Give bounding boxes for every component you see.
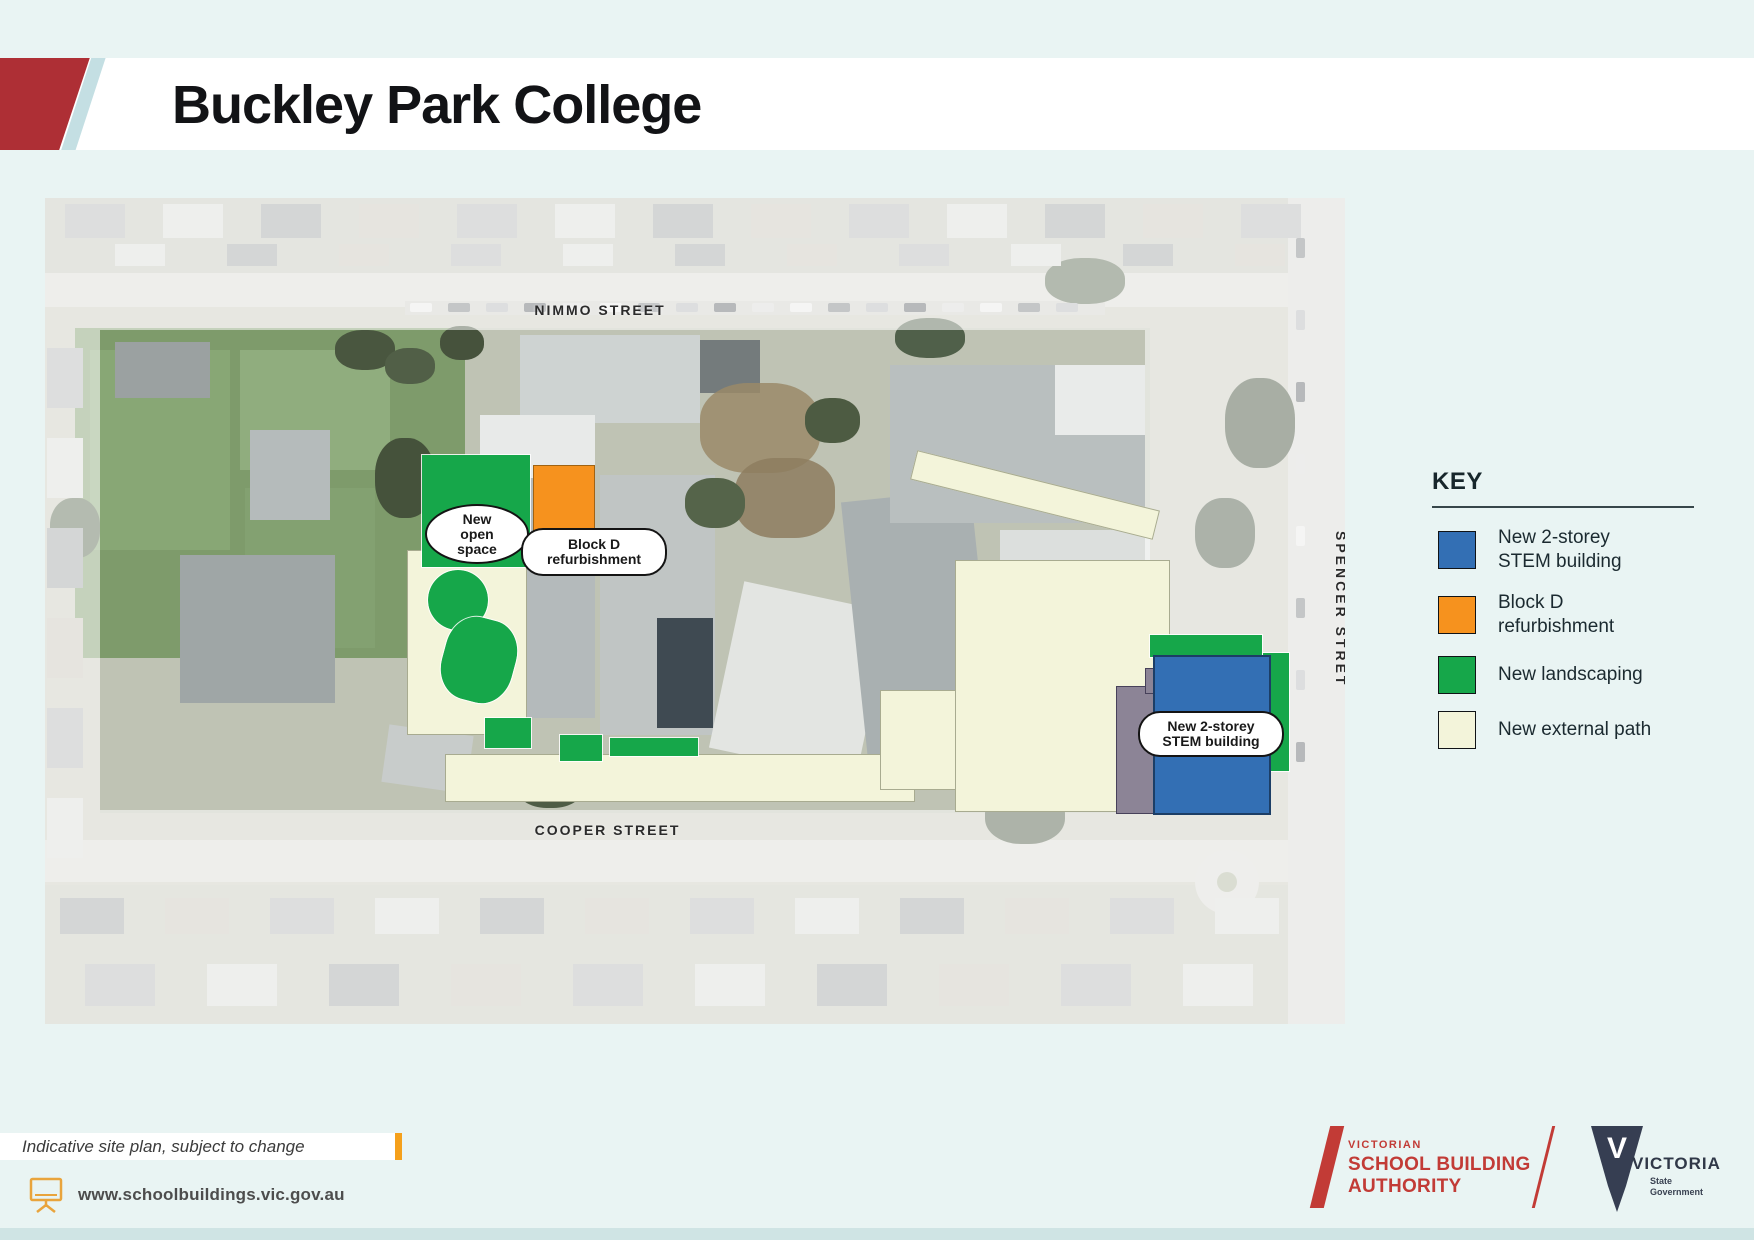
legend-swatch-stem <box>1438 531 1476 569</box>
fade-bottom <box>45 810 1345 1024</box>
callout-line: Block D <box>568 537 620 552</box>
new-landscaping-area <box>1150 635 1262 657</box>
monitor-icon <box>28 1176 64 1214</box>
site-plan-map: NIMMO STREET COOPER STREET SPENCER STRET… <box>45 198 1345 1024</box>
fade-left <box>45 330 100 810</box>
svg-text:V: V <box>1607 1132 1627 1165</box>
callout-line: open <box>460 527 493 542</box>
aerial-feature <box>440 326 484 360</box>
street-label-cooper: COOPER STREET <box>490 822 725 838</box>
legend-swatch-block-d <box>1438 596 1476 634</box>
aerial-feature <box>657 618 713 728</box>
page: Buckley Park College NIMMO STREET COOPER… <box>0 0 1754 1240</box>
vsba-tagline: VICTORIAN <box>1348 1140 1531 1151</box>
street-label-spencer: SPENCER STRET <box>1325 524 1345 694</box>
legend-label: New 2-storey STEM building <box>1498 526 1622 574</box>
legend-label: New landscaping <box>1498 663 1643 687</box>
legend: New 2-storey STEM building Block D refur… <box>1438 526 1651 749</box>
aerial-feature <box>115 342 210 398</box>
new-landscaping-area <box>610 738 698 756</box>
vsba-line1: SCHOOL BUILDING <box>1348 1155 1531 1174</box>
callout-stem-building: New 2-storey STEM building <box>1138 711 1284 757</box>
legend-label: Block D refurbishment <box>1498 591 1614 639</box>
vsba-logo: VICTORIAN SCHOOL BUILDING AUTHORITY <box>1320 1126 1570 1208</box>
victoria-logo: V VICTORIA State Government <box>1588 1124 1738 1216</box>
callout-line: New 2-storey <box>1167 719 1254 734</box>
aerial-feature <box>805 398 860 443</box>
aerial-feature <box>520 335 700 423</box>
aerial-feature <box>180 555 335 703</box>
victoria-subtitle: State Government <box>1650 1176 1703 1198</box>
website-row: www.schoolbuildings.vic.gov.au <box>28 1176 345 1214</box>
victoria-name: VICTORIA <box>1632 1154 1721 1174</box>
legend-item-path: New external path <box>1438 711 1651 749</box>
new-landscaping-area <box>485 718 531 748</box>
callout-line: New <box>463 512 492 527</box>
vsba-slash-icon <box>1310 1126 1344 1208</box>
callout-line: space <box>457 542 497 557</box>
callout-line: refurbishment <box>547 552 641 567</box>
legend-item-stem: New 2-storey STEM building <box>1438 526 1651 574</box>
disclaimer-text: Indicative site plan, subject to change <box>22 1137 305 1157</box>
callout-line: STEM building <box>1162 734 1259 749</box>
vsba-line2: AUTHORITY <box>1348 1177 1531 1196</box>
legend-item-block-d: Block D refurbishment <box>1438 591 1651 639</box>
aerial-feature <box>385 348 435 384</box>
vsba-slash-icon <box>1532 1126 1555 1208</box>
page-title: Buckley Park College <box>172 58 701 150</box>
callout-block-d: Block D refurbishment <box>521 528 667 576</box>
aerial-feature <box>250 430 330 520</box>
new-external-path-area <box>445 754 915 802</box>
new-landscaping-area <box>560 735 602 761</box>
callout-new-open-space: New open space <box>425 504 529 564</box>
website-url[interactable]: www.schoolbuildings.vic.gov.au <box>78 1185 345 1205</box>
aerial-feature <box>685 478 745 528</box>
street-label-nimmo: NIMMO STREET <box>485 302 715 318</box>
legend-title: KEY <box>1432 468 1483 496</box>
disclaimer-strip: Indicative site plan, subject to change <box>0 1133 402 1160</box>
aerial-feature <box>1055 365 1145 435</box>
aerial-feature <box>735 458 835 538</box>
legend-label: New external path <box>1498 718 1651 742</box>
legend-item-landscaping: New landscaping <box>1438 656 1651 694</box>
legend-rule <box>1432 506 1694 508</box>
legend-swatch-landscaping <box>1438 656 1476 694</box>
legend-swatch-path <box>1438 711 1476 749</box>
bottom-band <box>0 1228 1754 1240</box>
disclaimer-accent-bar <box>395 1133 402 1160</box>
header: Buckley Park College <box>0 58 1754 150</box>
